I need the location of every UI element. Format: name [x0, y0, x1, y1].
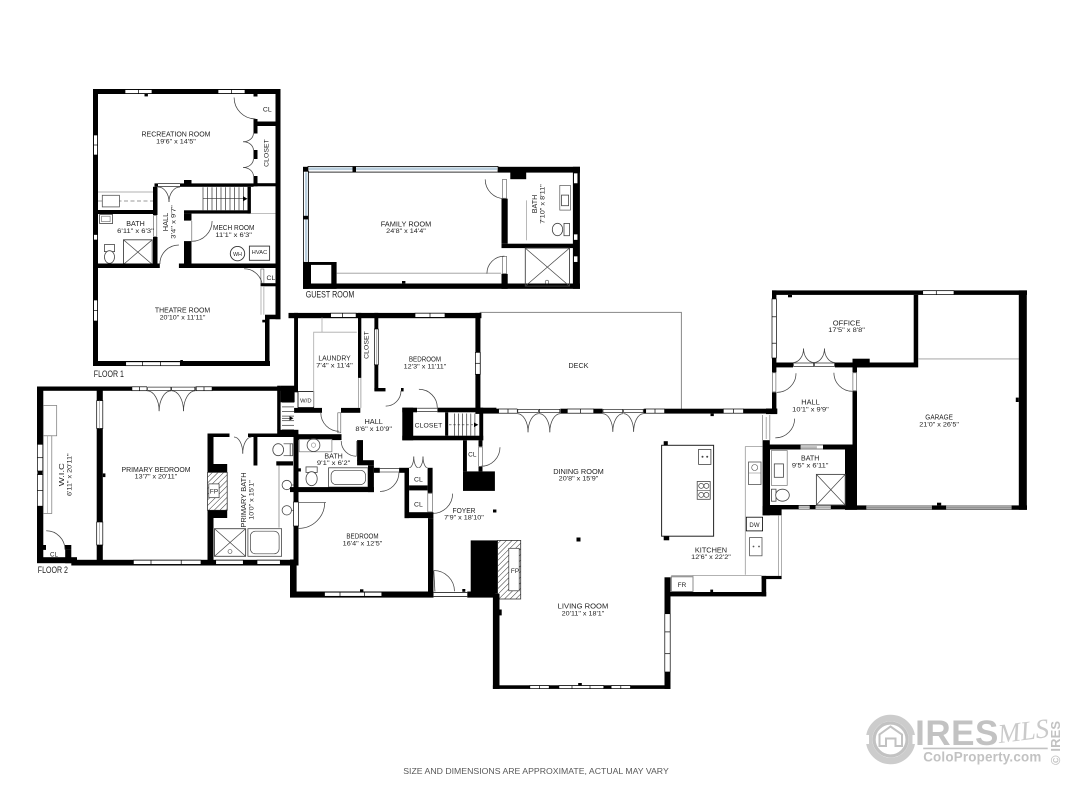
svg-text:3'4" x 9'7": 3'4" x 9'7" [170, 205, 177, 239]
svg-text:WH: WH [233, 252, 242, 258]
svg-text:DECK: DECK [568, 362, 588, 370]
svg-text:8'6" x 10'9": 8'6" x 10'9" [355, 426, 392, 433]
svg-text:FLOOR 2: FLOOR 2 [38, 565, 68, 575]
svg-text:16'4" x 12'5": 16'4" x 12'5" [343, 540, 383, 547]
svg-text:13'7" x 20'11": 13'7" x 20'11" [135, 474, 178, 481]
svg-text:RECREATION ROOM: RECREATION ROOM [142, 130, 211, 139]
svg-text:9'1" x 6'2": 9'1" x 6'2" [317, 460, 351, 467]
svg-text:HALL: HALL [161, 213, 170, 231]
svg-text:9'5" x 6'11": 9'5" x 6'11" [792, 462, 829, 469]
svg-text:6'11" x 6'3": 6'11" x 6'3" [117, 228, 154, 235]
svg-text:FAMILY ROOM: FAMILY ROOM [381, 219, 432, 228]
svg-text:21'0" x 26'5": 21'0" x 26'5" [919, 421, 959, 428]
svg-text:W.I.C: W.I.C [57, 462, 66, 486]
svg-text:BEDROOM: BEDROOM [346, 532, 378, 541]
svg-text:FP: FP [511, 568, 519, 575]
svg-text:7'10" x 8'11": 7'10" x 8'11" [539, 184, 546, 224]
svg-text:LAUNDRY: LAUNDRY [318, 354, 350, 363]
svg-text:KITCHEN: KITCHEN [695, 545, 727, 554]
svg-text:GARAGE: GARAGE [925, 413, 953, 422]
svg-text:FLOOR 1: FLOOR 1 [94, 369, 124, 379]
svg-text:DW: DW [749, 523, 759, 529]
svg-text:CLOSET: CLOSET [415, 422, 443, 429]
svg-text:11'1" x 6'3": 11'1" x 6'3" [215, 232, 252, 239]
svg-text:FOYER: FOYER [453, 506, 476, 515]
svg-text:CLOSET: CLOSET [364, 331, 371, 359]
svg-text:MLS: MLS [995, 713, 1051, 749]
svg-text:© IRES: © IRES [1048, 721, 1063, 765]
svg-text:SIZE AND DIMENSIONS ARE APPROX: SIZE AND DIMENSIONS ARE APPROXIMATE, ACT… [403, 766, 669, 776]
svg-text:20'11" x 18'1": 20'11" x 18'1" [562, 610, 605, 617]
svg-text:20'8" x 15'9": 20'8" x 15'9" [559, 476, 599, 483]
svg-text:CL: CL [414, 477, 423, 484]
svg-text:LIVING ROOM: LIVING ROOM [558, 602, 609, 611]
svg-text:PRIMARY BATH: PRIMARY BATH [239, 472, 248, 527]
svg-text:FP: FP [210, 489, 218, 496]
svg-text:BATH: BATH [126, 219, 144, 228]
svg-text:FR: FR [678, 582, 687, 589]
svg-text:CLOSET: CLOSET [264, 139, 271, 167]
svg-text:6'11" x 20'11": 6'11" x 20'11" [66, 453, 73, 496]
svg-text:ColoProperty.com: ColoProperty.com [923, 750, 1041, 765]
svg-text:20'10" x 11'11": 20'10" x 11'11" [160, 314, 206, 321]
svg-text:19'6" x 14'5": 19'6" x 14'5" [156, 138, 196, 145]
svg-text:HALL: HALL [801, 398, 819, 407]
svg-text:HVAC: HVAC [252, 250, 268, 256]
svg-text:17'5" x 8'8": 17'5" x 8'8" [828, 327, 865, 334]
svg-text:BATH: BATH [801, 454, 819, 463]
svg-text:24'8" x 14'4": 24'8" x 14'4" [386, 228, 426, 235]
svg-text:CL: CL [263, 107, 272, 114]
svg-text:CL: CL [267, 275, 276, 282]
svg-text:7'9" x 18'10": 7'9" x 18'10" [444, 515, 484, 522]
svg-text:BEDROOM: BEDROOM [409, 355, 441, 364]
svg-text:10'1" x 9'9": 10'1" x 9'9" [792, 406, 829, 413]
svg-text:PRIMARY BEDROOM: PRIMARY BEDROOM [122, 465, 191, 474]
svg-text:12'6" x 22'2": 12'6" x 22'2" [691, 554, 731, 561]
svg-text:IRES: IRES [915, 714, 999, 753]
svg-text:10'0" x 15'1": 10'0" x 15'1" [248, 480, 255, 520]
svg-text:12'3" x 11'11": 12'3" x 11'11" [404, 363, 447, 370]
svg-text:DINING ROOM: DINING ROOM [553, 467, 604, 476]
svg-text:W/D: W/D [300, 398, 312, 404]
svg-text:OFFICE: OFFICE [833, 318, 861, 327]
svg-text:BATH: BATH [530, 195, 539, 213]
svg-text:CL: CL [468, 452, 477, 459]
svg-text:CL: CL [414, 502, 423, 509]
svg-text:MECH ROOM: MECH ROOM [213, 223, 254, 232]
svg-text:BATH: BATH [324, 451, 342, 460]
svg-text:HALL: HALL [365, 417, 383, 426]
svg-text:GUEST ROOM: GUEST ROOM [306, 290, 355, 300]
svg-text:7'4" x 11'4": 7'4" x 11'4" [316, 362, 353, 369]
svg-text:THEATRE ROOM: THEATRE ROOM [155, 306, 210, 315]
